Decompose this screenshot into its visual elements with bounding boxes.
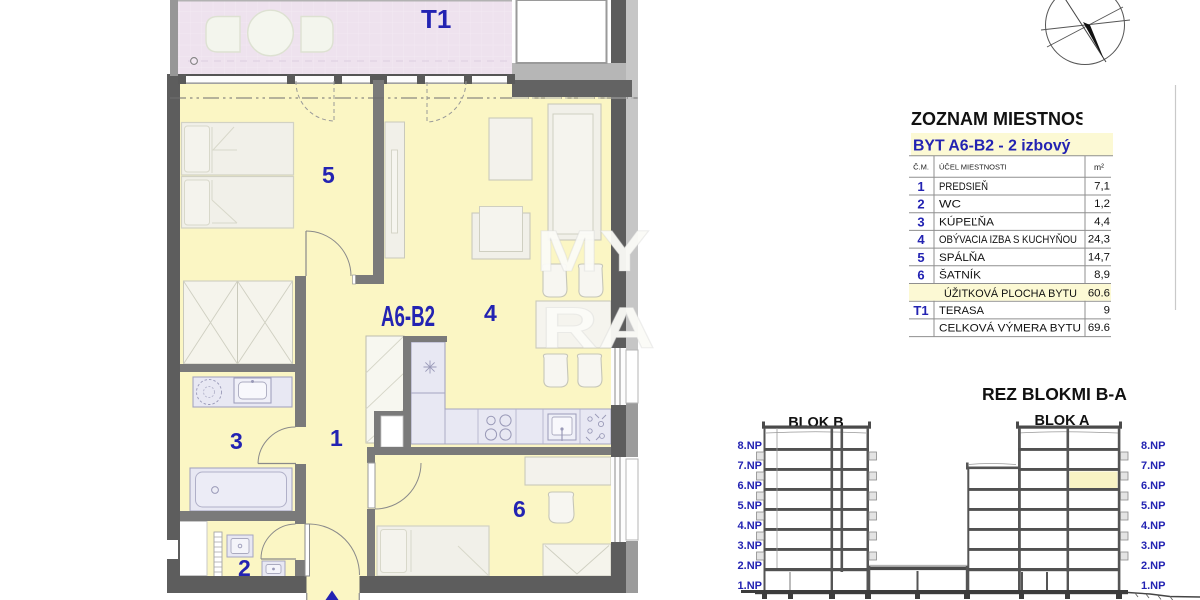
svg-text:60.6: 60.6 (1088, 288, 1110, 300)
svg-text:5: 5 (322, 162, 335, 188)
svg-text:ZOZNAM MIESTNOSTÍ: ZOZNAM MIESTNOSTÍ (911, 108, 1104, 129)
svg-text:KÚPEĽŇA: KÚPEĽŇA (939, 215, 994, 228)
svg-text:5.NP: 5.NP (738, 500, 762, 512)
svg-text:3.NP: 3.NP (738, 540, 762, 552)
svg-text:7.NP: 7.NP (738, 460, 762, 472)
svg-text:4,4: 4,4 (1094, 216, 1110, 228)
svg-text:A6-B2: A6-B2 (381, 301, 435, 333)
svg-text:ÚČEL MIESTNOSTI: ÚČEL MIESTNOSTI (939, 163, 1007, 172)
svg-text:ÚŽITKOVÁ PLOCHA BYTU: ÚŽITKOVÁ PLOCHA BYTU (944, 287, 1077, 300)
svg-text:24,3: 24,3 (1088, 234, 1110, 246)
svg-text:3: 3 (917, 214, 924, 229)
svg-text:BYT A6-B2 - 2 izbový: BYT A6-B2 - 2 izbový (913, 138, 1071, 155)
svg-text:1: 1 (917, 179, 924, 194)
svg-text:WC: WC (939, 199, 961, 211)
svg-text:8.NP: 8.NP (738, 440, 762, 452)
svg-text:6: 6 (513, 496, 526, 522)
svg-text:T1: T1 (913, 303, 928, 318)
svg-text:ŠATNÍK: ŠATNÍK (939, 269, 981, 282)
svg-text:4.NP: 4.NP (1141, 520, 1165, 532)
svg-text:OBÝVACIA IZBA S KUCHYŇOU: OBÝVACIA IZBA S KUCHYŇOU (939, 233, 1077, 246)
svg-text:9: 9 (1104, 304, 1110, 316)
svg-text:1: 1 (330, 425, 343, 451)
svg-text:2.NP: 2.NP (738, 560, 762, 572)
svg-text:7.NP: 7.NP (1141, 460, 1165, 472)
svg-text:7,1: 7,1 (1094, 181, 1110, 193)
svg-text:6: 6 (917, 268, 924, 283)
svg-text:6.NP: 6.NP (738, 480, 762, 492)
svg-text:8,9: 8,9 (1094, 269, 1110, 281)
svg-text:4: 4 (917, 232, 925, 247)
svg-text:8.NP: 8.NP (1141, 440, 1165, 452)
svg-text:3: 3 (230, 428, 243, 454)
svg-text:PREDSIEŇ: PREDSIEŇ (939, 180, 988, 193)
svg-text:REZ BLOKMI B-A: REZ BLOKMI B-A (982, 384, 1127, 404)
svg-text:5.NP: 5.NP (1141, 500, 1165, 512)
svg-text:6.NP: 6.NP (1141, 480, 1165, 492)
svg-text:CELKOVÁ VÝMERA BYTU: CELKOVÁ VÝMERA BYTU (939, 322, 1081, 335)
svg-text:3.NP: 3.NP (1141, 540, 1165, 552)
svg-text:m²: m² (1094, 162, 1104, 172)
svg-text:TERASA: TERASA (939, 305, 984, 317)
svg-text:SPÁLŇA: SPÁLŇA (939, 251, 985, 264)
svg-text:T1: T1 (421, 4, 451, 34)
svg-text:Č.M.: Č.M. (913, 163, 929, 172)
svg-text:1.NP: 1.NP (1141, 580, 1165, 592)
svg-text:MY: MY (536, 219, 650, 284)
svg-text:2.NP: 2.NP (1141, 560, 1165, 572)
svg-text:1,2: 1,2 (1094, 198, 1110, 210)
svg-text:RA: RA (541, 296, 655, 361)
svg-text:14,7: 14,7 (1088, 251, 1110, 263)
svg-text:5: 5 (917, 250, 924, 265)
svg-text:2: 2 (238, 555, 251, 581)
svg-text:4: 4 (484, 300, 497, 326)
svg-text:69.6: 69.6 (1088, 322, 1110, 334)
svg-text:2: 2 (917, 197, 924, 212)
svg-text:4.NP: 4.NP (738, 520, 762, 532)
